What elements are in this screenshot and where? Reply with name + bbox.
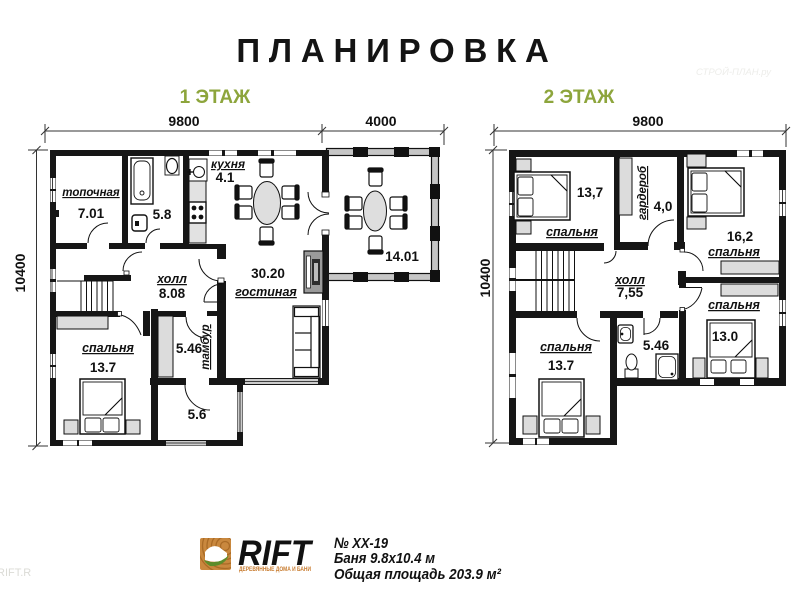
svg-text:4,0: 4,0 [654, 199, 673, 214]
svg-text:тамбур: тамбур [200, 324, 212, 369]
svg-text:спальня: спальня [82, 341, 134, 355]
svg-text:гардероб: гардероб [637, 165, 649, 220]
svg-text:7.01: 7.01 [78, 206, 105, 221]
svg-text:спальня: спальня [540, 340, 592, 354]
svg-text:спальня: спальня [546, 225, 598, 239]
svg-text:5.46: 5.46 [176, 341, 203, 356]
svg-text:топочная: топочная [62, 187, 120, 199]
svg-text:13.7: 13.7 [90, 360, 116, 375]
svg-text:9800: 9800 [632, 113, 663, 129]
svg-text:16,2: 16,2 [727, 229, 753, 244]
svg-text:14.01: 14.01 [385, 249, 419, 264]
svg-text:гостиная: гостиная [235, 285, 297, 299]
svg-text:10400: 10400 [12, 253, 28, 292]
svg-text:1 ЭТАЖ: 1 ЭТАЖ [180, 87, 251, 108]
svg-text:холл: холл [156, 272, 187, 286]
svg-text:2 ЭТАЖ: 2 ЭТАЖ [544, 87, 615, 108]
svg-text:13.0: 13.0 [712, 329, 738, 344]
svg-text:5.8: 5.8 [153, 207, 172, 222]
svg-text:спальня: спальня [708, 245, 760, 259]
svg-text:ДЕРЕВЯННЫЕ ДОМА И БАНИ: ДЕРЕВЯННЫЕ ДОМА И БАНИ [239, 567, 311, 573]
svg-text:4000: 4000 [365, 113, 396, 129]
svg-text:7,55: 7,55 [617, 285, 644, 300]
svg-text:13.7: 13.7 [548, 358, 574, 373]
svg-text:5.46: 5.46 [643, 338, 670, 353]
svg-text:Баня 9.8х10.4 м: Баня 9.8х10.4 м [334, 550, 435, 567]
svg-text:4.1: 4.1 [216, 170, 235, 185]
svg-text:10400: 10400 [477, 258, 493, 297]
svg-text:СТРОЙ-ПЛАН.ру: СТРОЙ-ПЛАН.ру [696, 66, 772, 78]
svg-text:кухня: кухня [211, 157, 245, 171]
svg-text:13,7: 13,7 [577, 185, 603, 200]
svg-text:RIFT.R: RIFT.R [0, 567, 31, 579]
svg-text:9800: 9800 [168, 113, 199, 129]
svg-text:30.20: 30.20 [251, 266, 285, 281]
svg-text:спальня: спальня [708, 298, 760, 312]
svg-text:ПЛАНИРОВКА: ПЛАНИРОВКА [236, 32, 557, 69]
svg-text:8.08: 8.08 [159, 286, 186, 301]
svg-text:5.6: 5.6 [188, 407, 207, 422]
svg-text:Общая площадь 203.9 м²: Общая площадь 203.9 м² [334, 566, 502, 583]
